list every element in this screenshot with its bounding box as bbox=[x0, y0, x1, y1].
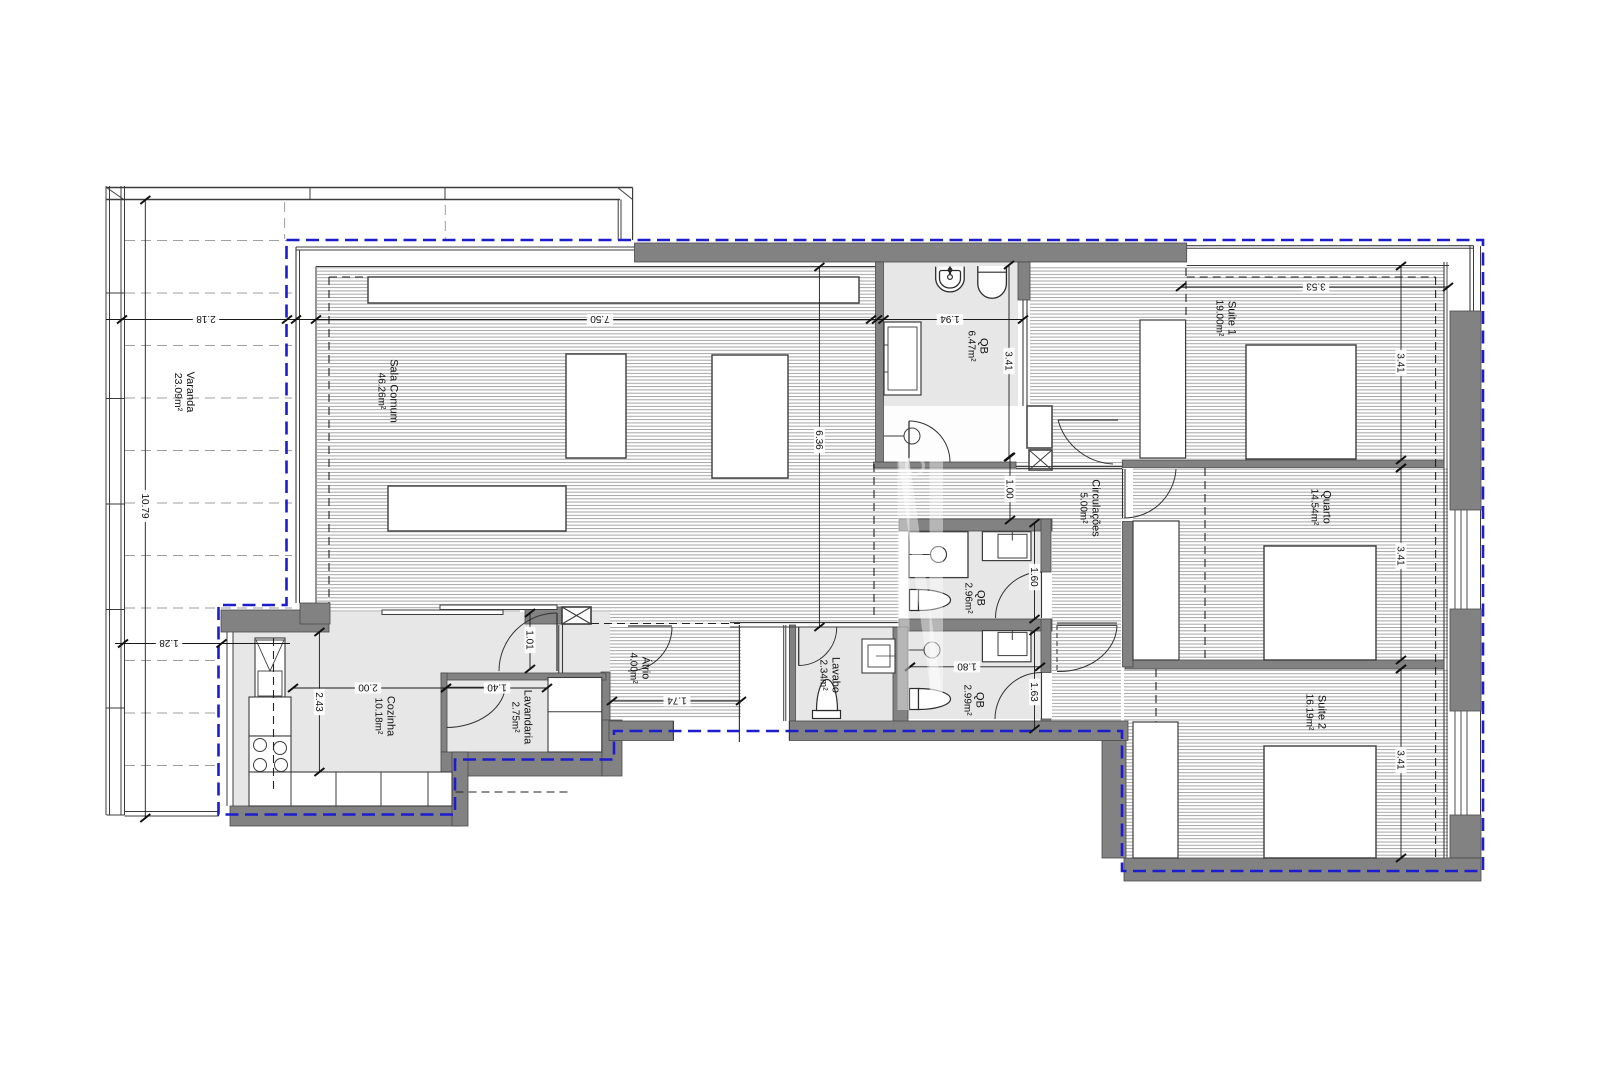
svg-text:Suite 1: Suite 1 bbox=[1226, 301, 1238, 335]
svg-text:Quarto: Quarto bbox=[1321, 490, 1333, 524]
svg-text:3.41: 3.41 bbox=[1395, 750, 1406, 770]
svg-text:2.34m²: 2.34m² bbox=[818, 659, 829, 691]
svg-text:3.53: 3.53 bbox=[1306, 281, 1326, 292]
svg-text:6.47m²: 6.47m² bbox=[966, 330, 977, 362]
svg-text:2.75m²: 2.75m² bbox=[510, 701, 521, 733]
svg-text:QB: QB bbox=[974, 692, 986, 708]
svg-text:4.00m²: 4.00m² bbox=[628, 652, 639, 684]
svg-text:2.43: 2.43 bbox=[313, 692, 324, 712]
svg-text:1.28: 1.28 bbox=[159, 637, 179, 648]
svg-text:2.00: 2.00 bbox=[358, 682, 378, 693]
svg-text:Sala Comum: Sala Comum bbox=[388, 359, 400, 423]
svg-text:1.00: 1.00 bbox=[1004, 479, 1015, 499]
svg-text:3.41: 3.41 bbox=[1003, 351, 1014, 371]
svg-text:Varanda: Varanda bbox=[184, 372, 196, 414]
svg-text:2.18: 2.18 bbox=[196, 313, 216, 324]
svg-text:3.41: 3.41 bbox=[1395, 353, 1406, 373]
svg-text:Átrio: Átrio bbox=[640, 657, 653, 680]
svg-text:1.01: 1.01 bbox=[524, 630, 535, 650]
svg-text:Lavandaria: Lavandaria bbox=[522, 690, 534, 745]
svg-text:5.00m²: 5.00m² bbox=[1078, 492, 1089, 524]
svg-text:QB: QB bbox=[978, 338, 990, 354]
svg-text:1.80: 1.80 bbox=[957, 660, 977, 671]
svg-text:Suite 2: Suite 2 bbox=[1316, 695, 1328, 729]
svg-text:QB: QB bbox=[975, 590, 987, 606]
svg-text:3.41: 3.41 bbox=[1395, 546, 1406, 566]
svg-text:10.79: 10.79 bbox=[139, 493, 150, 518]
svg-text:10.18m²: 10.18m² bbox=[373, 698, 384, 735]
svg-text:2.96m²: 2.96m² bbox=[963, 582, 974, 614]
svg-text:46.26m²: 46.26m² bbox=[376, 373, 387, 410]
svg-text:2.99m²: 2.99m² bbox=[962, 684, 973, 716]
svg-text:1.60: 1.60 bbox=[1028, 567, 1039, 587]
svg-text:Circulações: Circulações bbox=[1090, 479, 1102, 537]
svg-text:16.19m²: 16.19m² bbox=[1304, 694, 1315, 731]
svg-text:19.00m²: 19.00m² bbox=[1214, 300, 1225, 337]
svg-text:1.94: 1.94 bbox=[940, 313, 960, 324]
svg-text:Lavabo: Lavabo bbox=[830, 657, 842, 693]
svg-text:Cozinha: Cozinha bbox=[385, 696, 397, 737]
svg-text:6.36: 6.36 bbox=[813, 430, 824, 450]
svg-text:23.09m²: 23.09m² bbox=[172, 373, 184, 412]
svg-text:7.50: 7.50 bbox=[590, 313, 610, 324]
svg-text:1.74: 1.74 bbox=[667, 695, 687, 706]
svg-text:1.40: 1.40 bbox=[487, 682, 507, 693]
svg-text:1.63: 1.63 bbox=[1028, 682, 1039, 702]
svg-text:14.54m²: 14.54m² bbox=[1309, 489, 1320, 526]
